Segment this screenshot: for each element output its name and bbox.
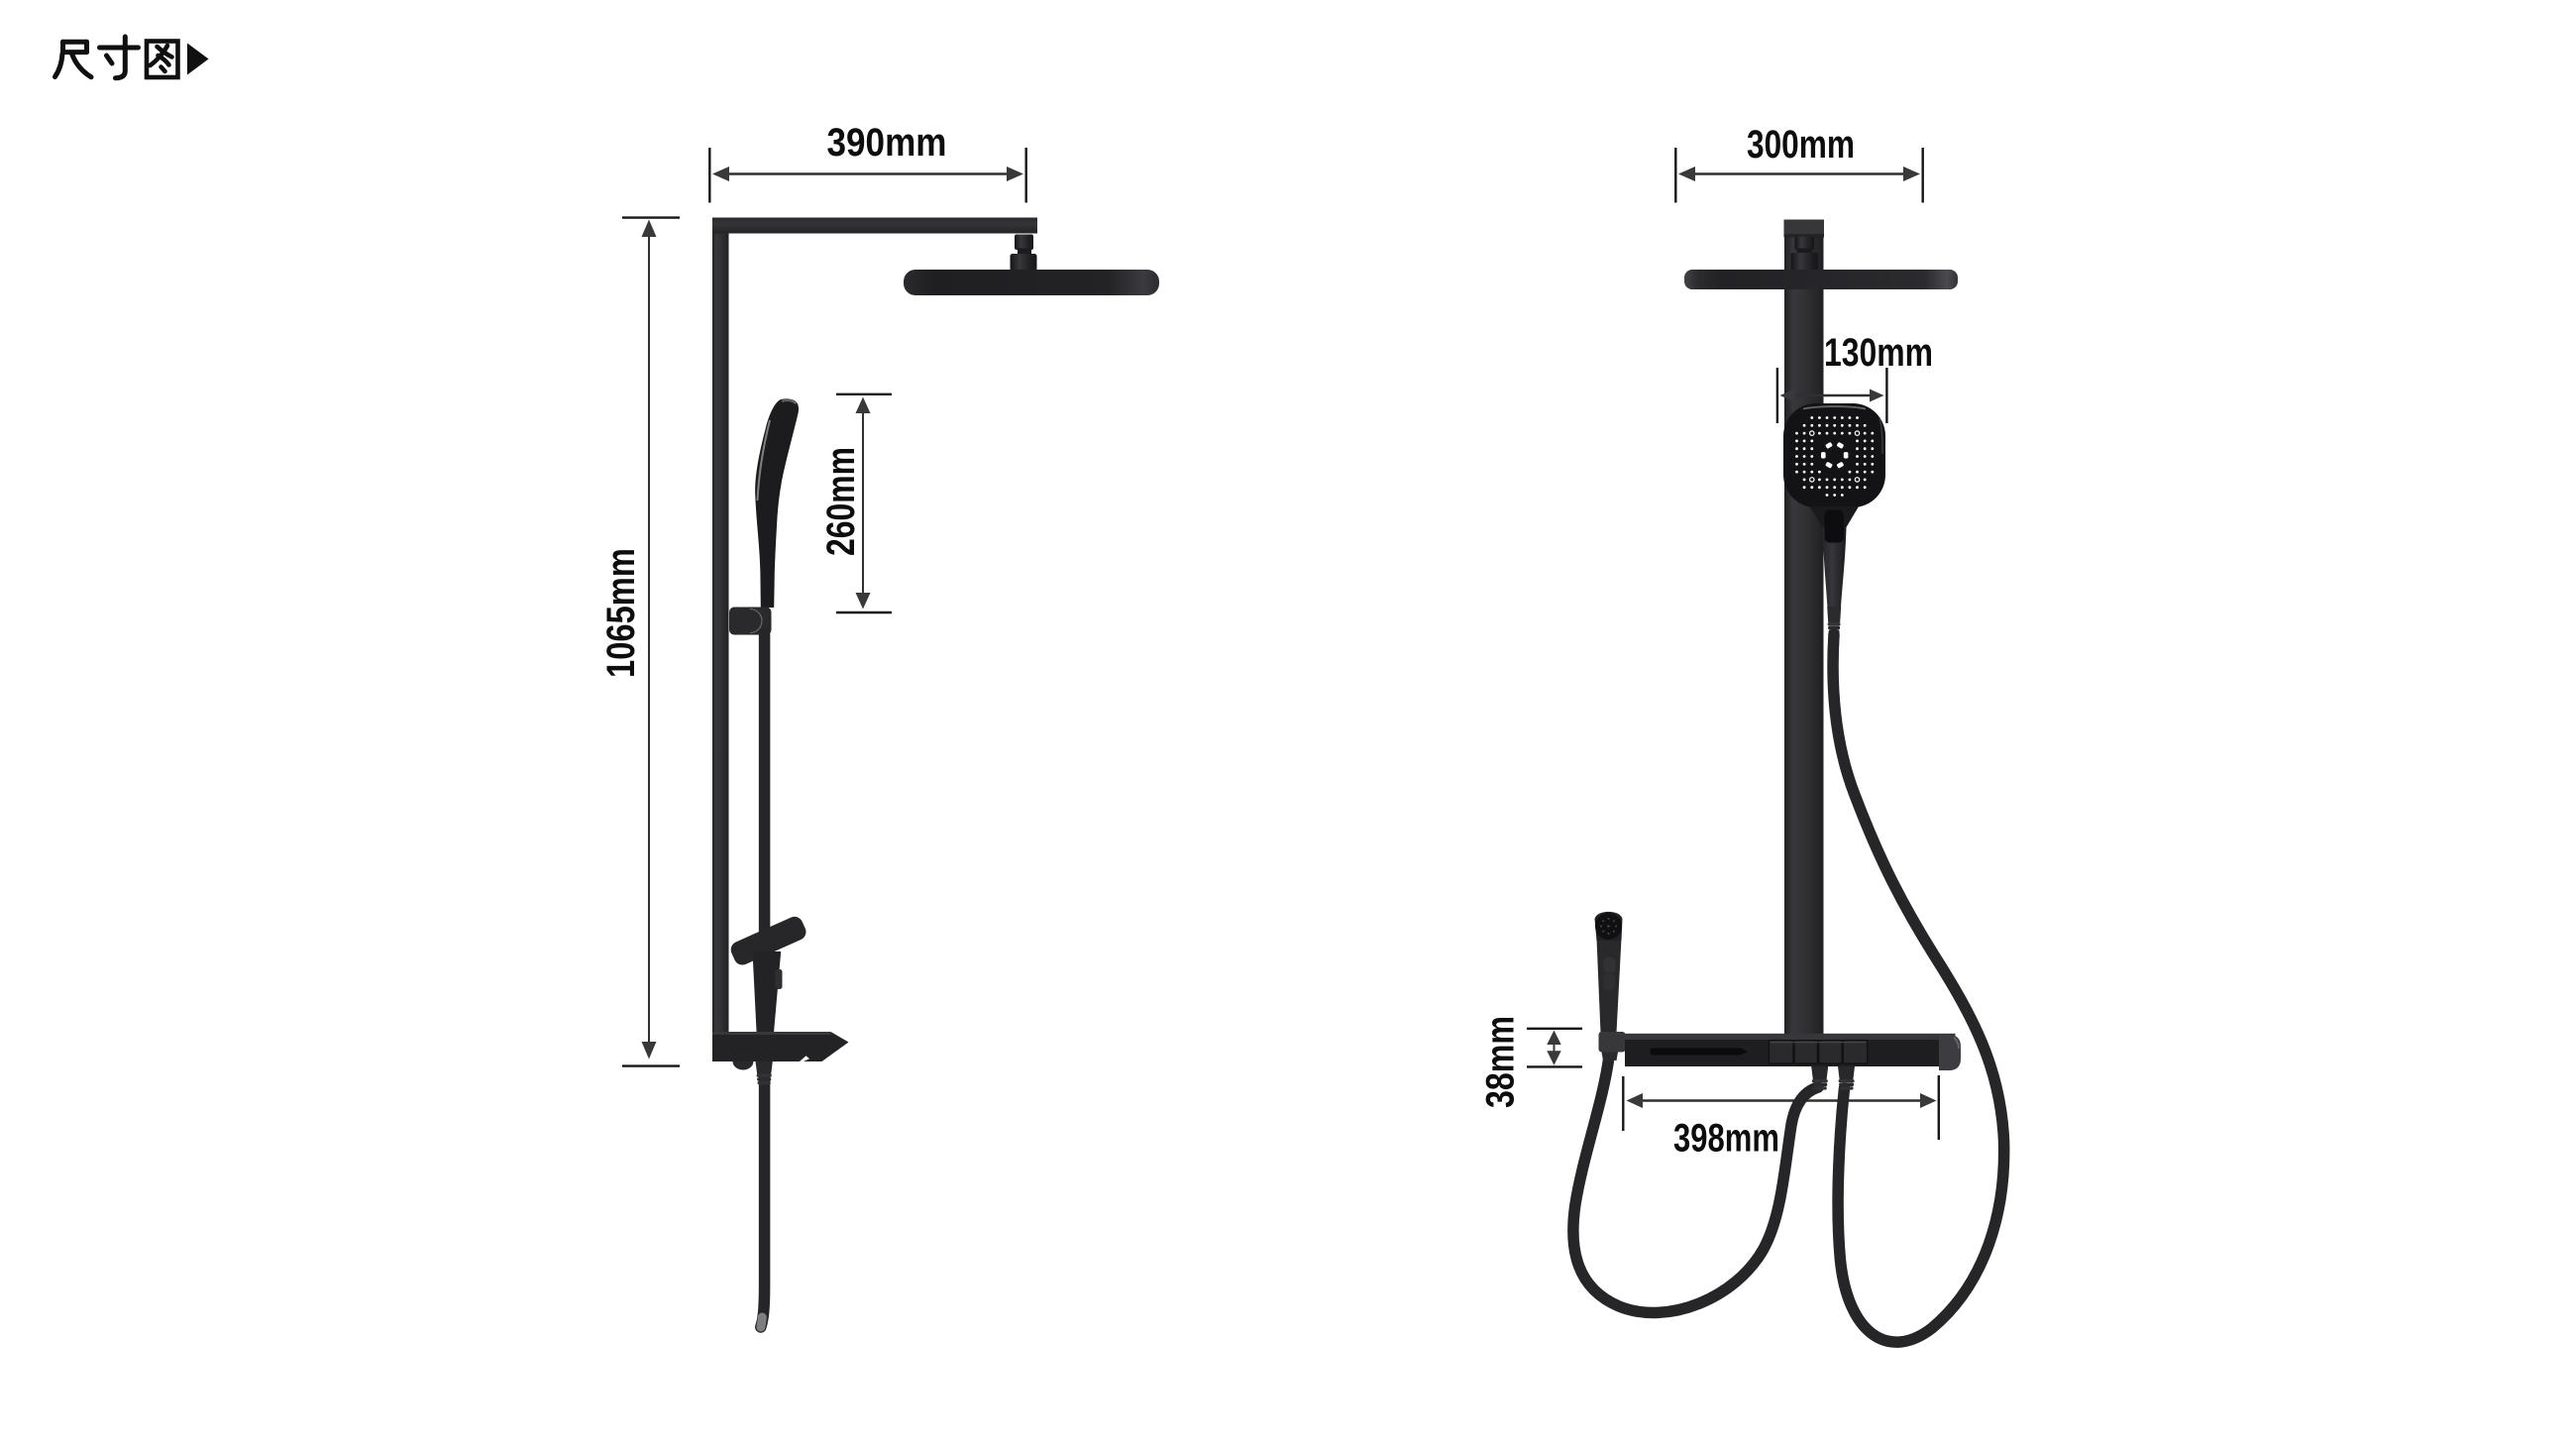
- svg-text:1065mm: 1065mm: [599, 548, 643, 678]
- svg-text:38mm: 38mm: [1478, 1016, 1522, 1108]
- svg-text:260mm: 260mm: [819, 447, 863, 556]
- svg-text:300mm: 300mm: [1747, 123, 1855, 167]
- svg-text:390mm: 390mm: [827, 121, 947, 165]
- svg-text:398mm: 398mm: [1673, 1116, 1779, 1160]
- svg-text:130mm: 130mm: [1824, 331, 1933, 375]
